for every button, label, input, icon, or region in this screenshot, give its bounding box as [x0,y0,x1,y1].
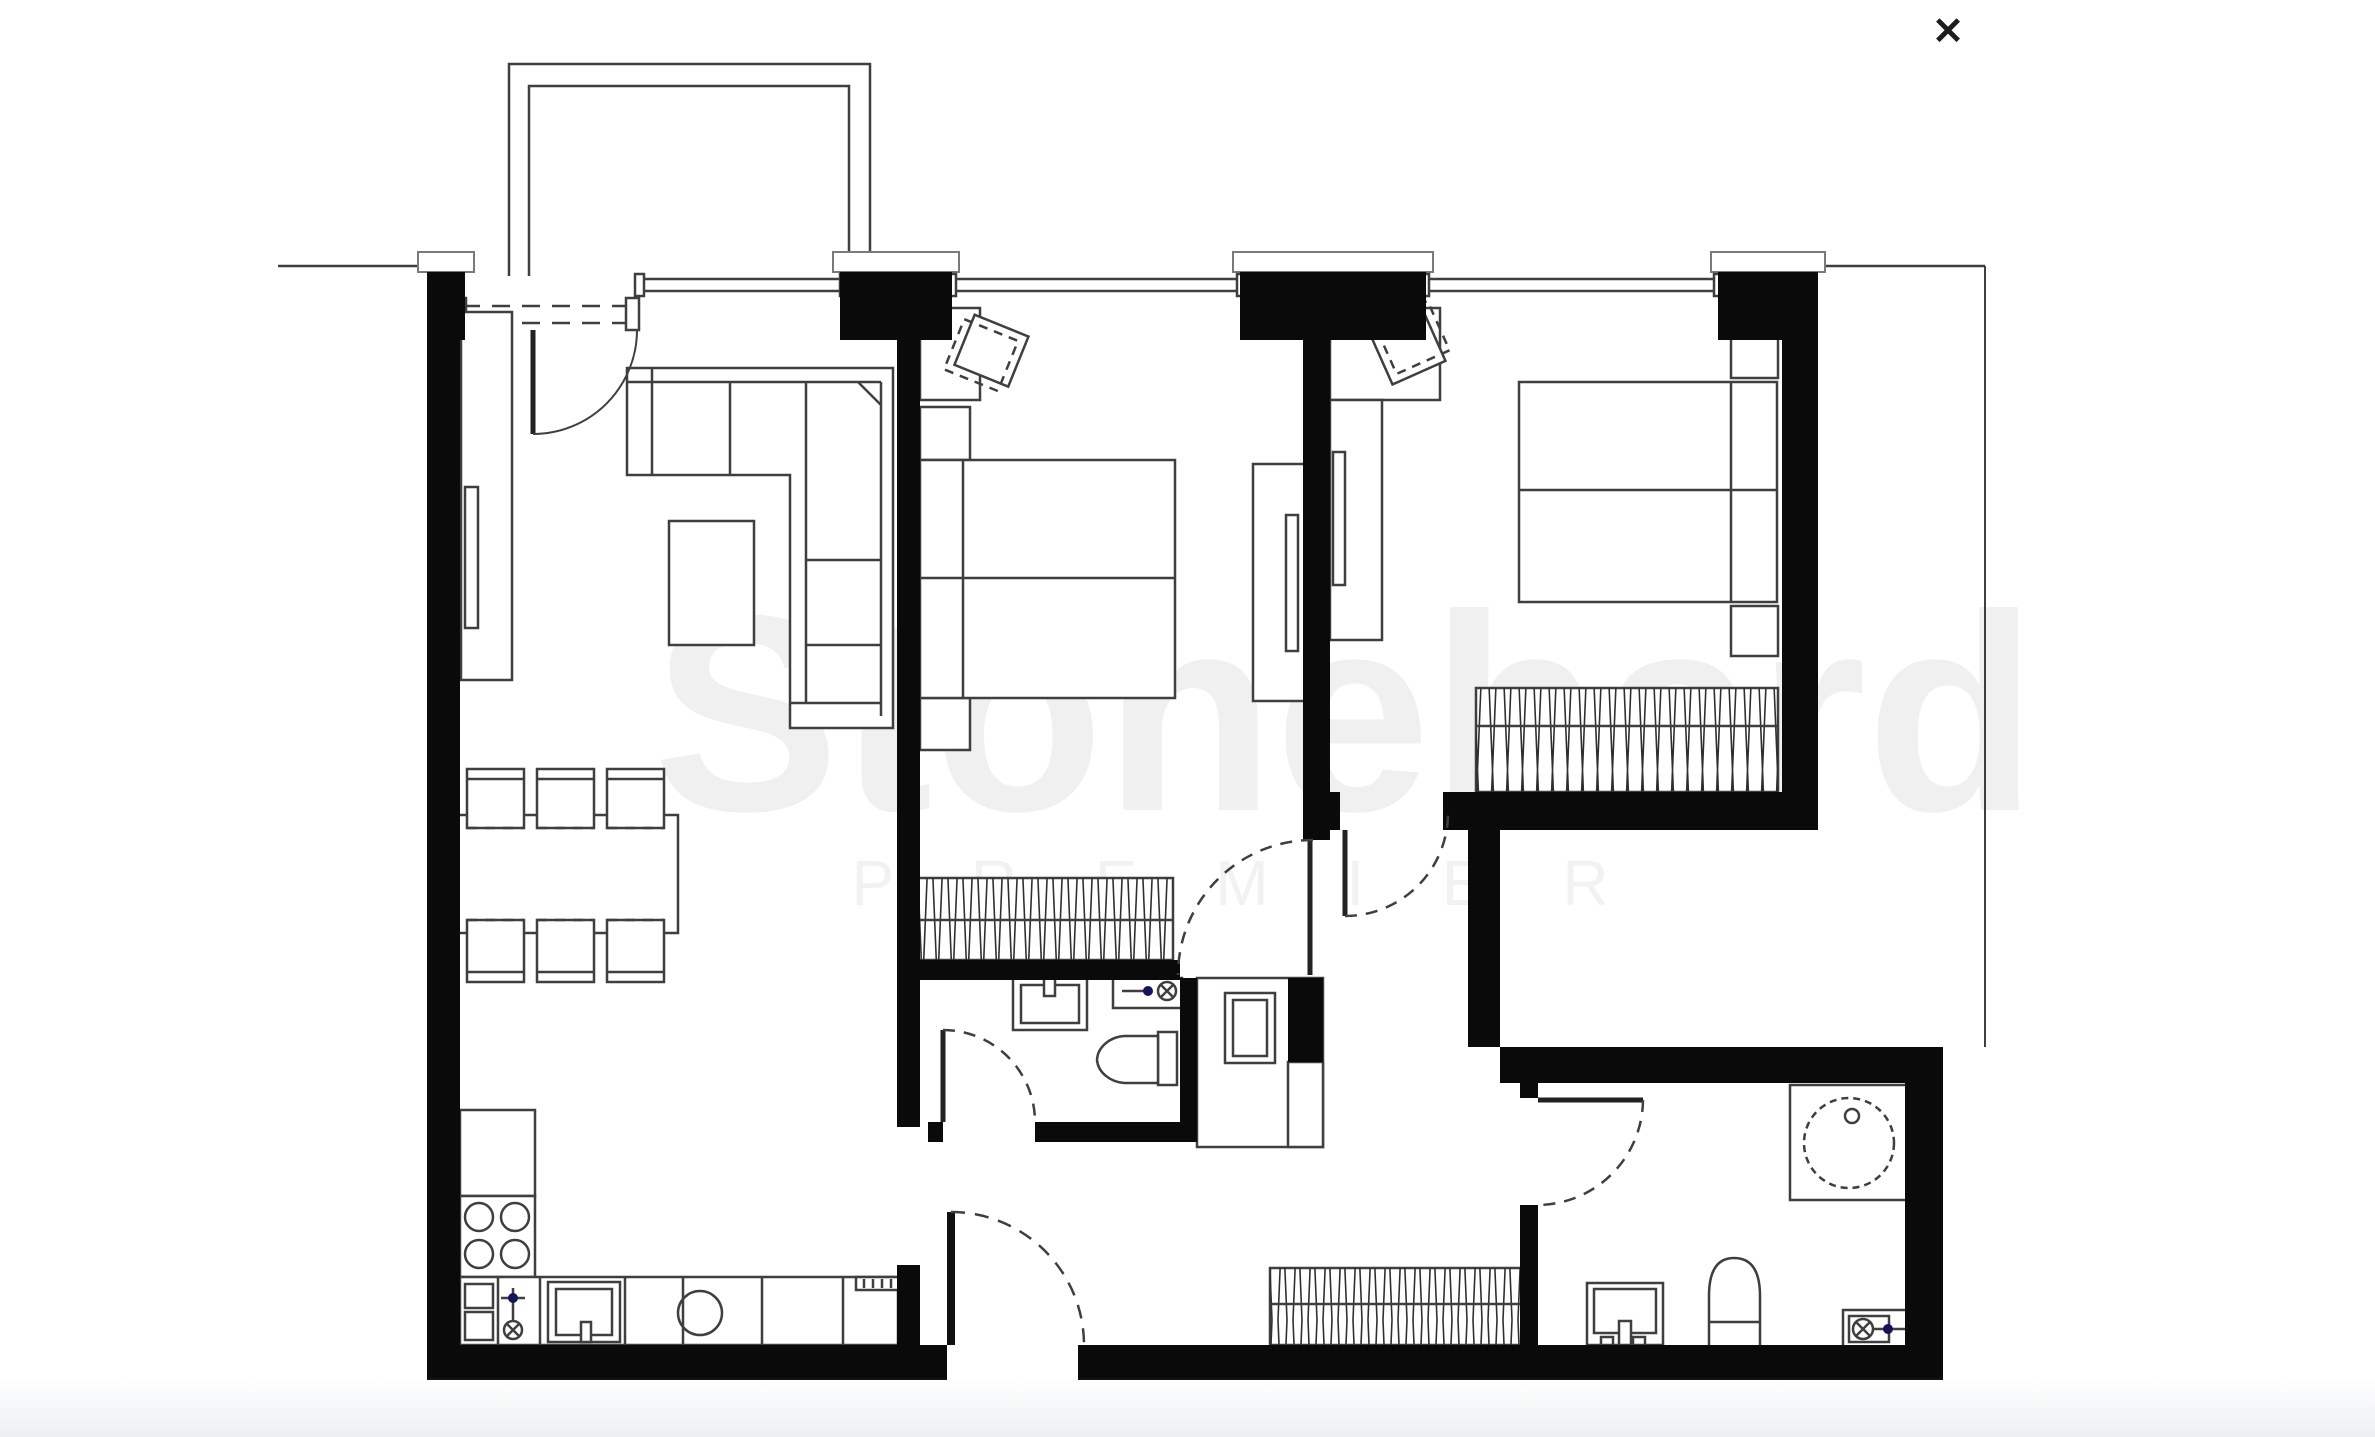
double-bed-icon [1519,382,1777,602]
sill-ledge [1233,252,1433,272]
washing-machine-icon [1225,993,1275,1063]
wall-stub [1323,792,1340,830]
wall-bedroom-partition [1303,310,1330,840]
wall-bathroom2-left-stub [1520,1083,1538,1098]
wall-bathroom2-left [1520,1205,1538,1345]
tv-icon [465,487,478,628]
wall-pier [1240,272,1426,340]
counter-vent-icon [856,1277,900,1290]
wall-left [427,272,460,1380]
wall-bathroom1-east [1180,978,1197,1122]
sliding-wardrobe-icon [1253,464,1307,701]
sill-ledge [1711,252,1825,272]
wall-living-partition [897,340,920,1127]
wall-bedroom2-right [1782,338,1818,796]
floor-plan-image: Stonehard P R E M I E R [0,0,2375,1437]
wall-living-partition-pier [897,1265,920,1345]
wall-pier [1718,272,1818,340]
nightstand-icon [1731,606,1778,656]
hatched-wardrobe-icon [1270,1268,1529,1345]
sill-ledge [418,252,474,272]
duct-outline [1288,1062,1323,1147]
duct-shaft-icon [1288,978,1323,1062]
page-bottom-fade [0,1377,2375,1437]
wall-bathroom1-bottom [1035,1122,1197,1142]
washbasin-icon [1587,1283,1663,1345]
wall-stub [928,1122,943,1142]
wall-bottom-right [1078,1345,1943,1380]
toilet-icon [1097,1032,1177,1085]
kitchen-tall-cabinet [460,1110,535,1196]
stove-burners-icon [460,1196,535,1277]
floor-plan-viewer: Stonehard P R E M I E R [0,0,2375,1437]
double-bed-icon [920,460,1175,698]
nightstand-icon [920,698,970,750]
kitchen-sink-icon [548,1282,620,1342]
sill-ledge [833,252,959,272]
nightstand-icon [920,407,970,460]
round-tub-icon [1790,1085,1908,1200]
wall-bathroom2-right [1905,1083,1943,1345]
wall-pier [840,272,952,340]
wall-bottom-left [427,1345,947,1380]
close-icon[interactable]: ✕ [1922,6,1974,58]
door-jamb [626,298,639,330]
sliding-wardrobe-icon [1330,400,1382,640]
wall-bathroom2-top [1500,1047,1943,1083]
washbasin-icon [1013,972,1087,1030]
water-valve-icon [1843,1310,1907,1347]
hatched-wardrobe-icon [913,878,1173,960]
wall-corridor-right [1468,792,1500,1047]
fridge-icon [465,1284,493,1340]
water-valve-icon [1113,978,1182,1008]
toilet-icon [1709,1258,1760,1345]
coffee-table-icon [669,521,754,645]
hatched-wardrobe-icon [1476,688,1778,792]
dining-table-icon [455,815,678,933]
wall-bedroom1-bottom [897,960,1180,980]
